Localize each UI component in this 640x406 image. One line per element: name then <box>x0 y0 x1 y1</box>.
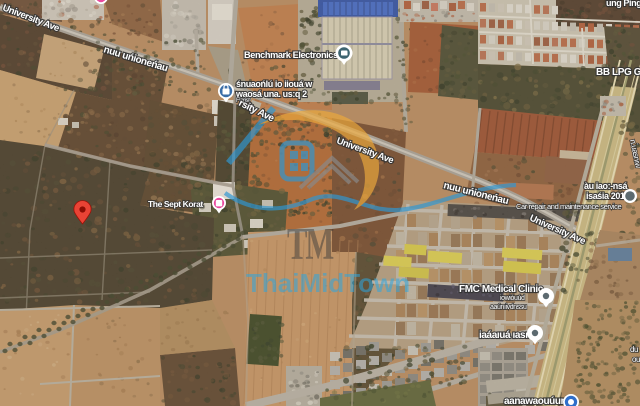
svg-text:iowióuúd: iowióuúd <box>500 295 525 302</box>
svg-text:aaúnıivdnssu: aaúnıivdnssu <box>490 304 527 311</box>
svg-text:FMC Medical Clinic: FMC Medical Clinic <box>459 284 544 295</box>
svg-text:TM: TM <box>287 220 334 269</box>
svg-text:śnuaońlú io iiouá w: śnuaońlú io iiouá w <box>236 79 313 89</box>
svg-text:ou: ou <box>632 355 640 364</box>
svg-text:Benchmark Electronics: Benchmark Electronics <box>244 50 338 60</box>
svg-text:Car repair and maintenance ser: Car repair and maintenance service <box>516 202 621 211</box>
svg-text:BB LPG Gas: BB LPG Gas <box>596 67 640 78</box>
svg-text:The Sept Korat: The Sept Korat <box>148 199 203 209</box>
svg-text:aanawaouúuni: aanawaouúuni <box>504 396 569 406</box>
svg-text:du: du <box>630 345 638 354</box>
svg-text:ThaiMidTown: ThaiMidTown <box>246 268 410 298</box>
svg-text:ung Ping: ung Ping <box>606 0 640 8</box>
svg-text:àu iao:-nsá: àu iao:-nsá <box>584 181 629 191</box>
